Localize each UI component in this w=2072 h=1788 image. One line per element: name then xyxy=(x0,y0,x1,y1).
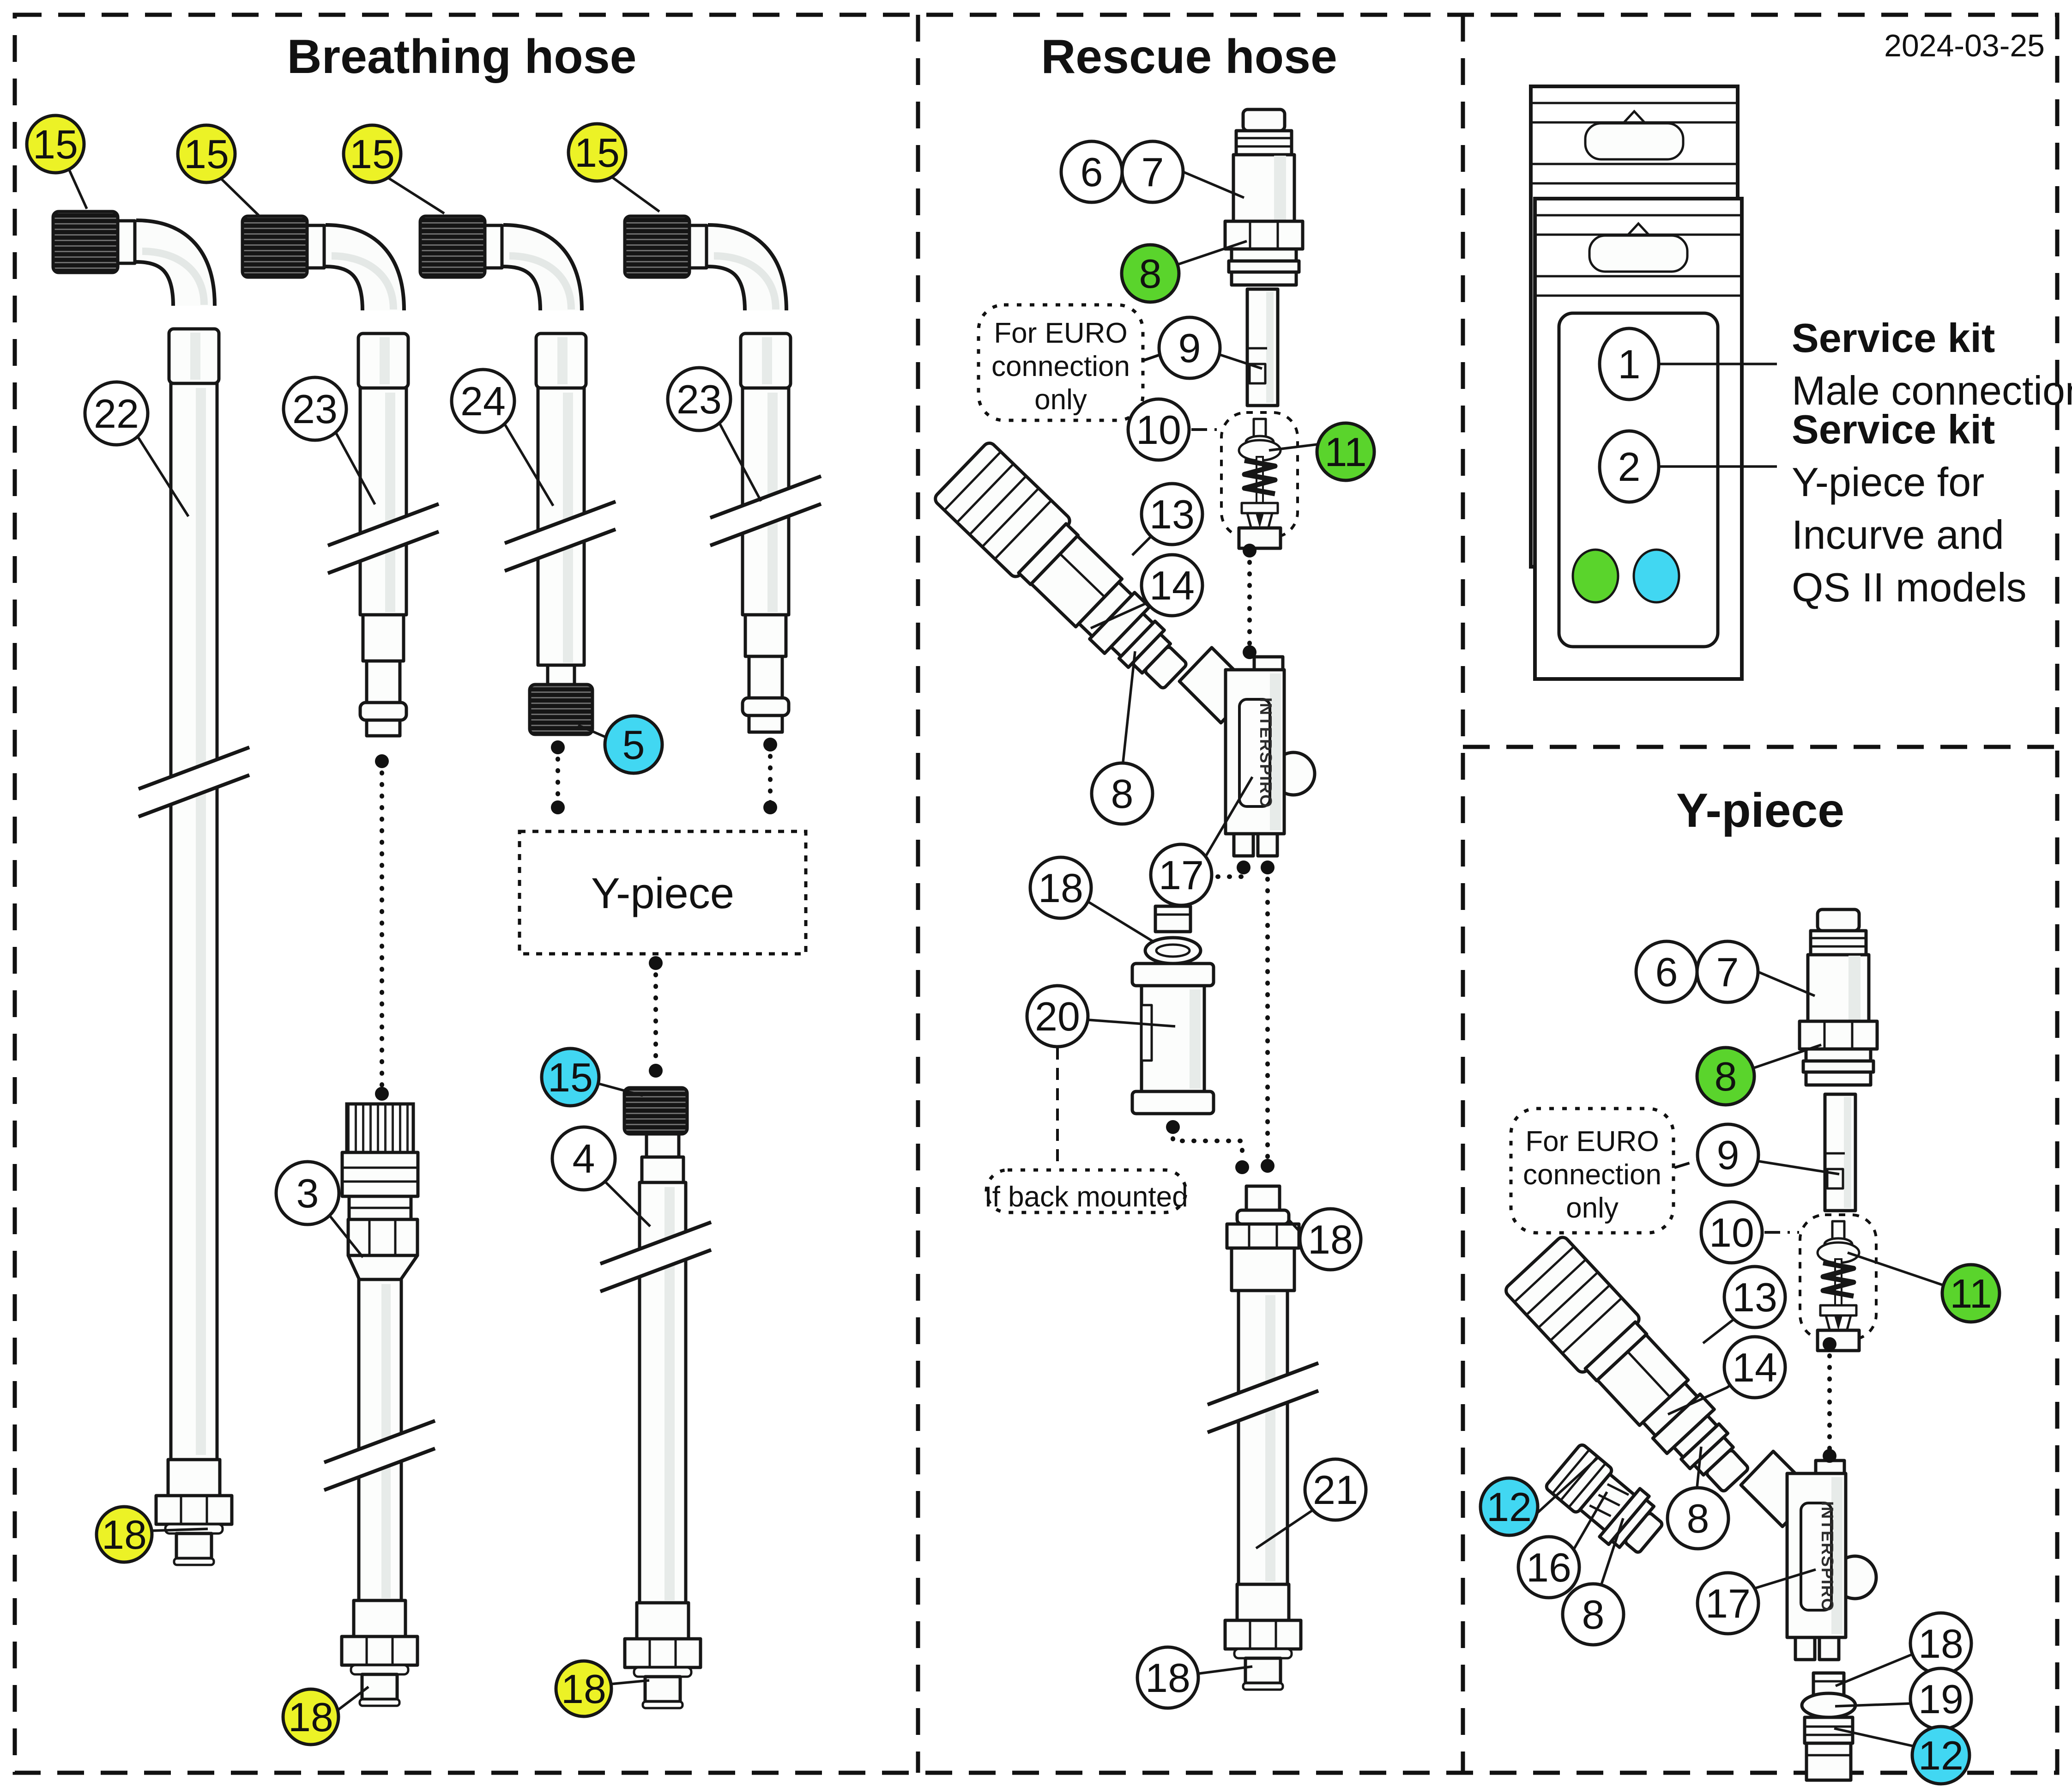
callout-number: 18 xyxy=(1918,1621,1963,1667)
breathing-hose-24 xyxy=(420,216,616,734)
kit2-cyan-oring xyxy=(1634,550,1679,602)
parts-diagram-page: INTERSPIRO 2024-03-25 Breathing hose xyxy=(0,0,2072,1788)
callout-number: 9 xyxy=(1717,1132,1740,1178)
callout-10: 10 xyxy=(1701,1202,1799,1263)
kit2-desc-line3: QS II models xyxy=(1792,564,2027,610)
callout-8: 8 xyxy=(1092,651,1153,824)
ypiece-placeholder-label: Y-piece xyxy=(591,869,734,917)
callout-11: 11 xyxy=(1269,423,1374,480)
callout-18: 18 xyxy=(1289,1209,1361,1270)
kit2-desc-line1: Y-piece for xyxy=(1792,459,1984,505)
callout-15: 15 xyxy=(178,125,259,215)
callout-number: 8 xyxy=(1582,1592,1605,1637)
breathing-hose-23b xyxy=(625,216,821,732)
breathing-hose-title: Breathing hose xyxy=(287,30,637,84)
callout-number: 5 xyxy=(622,722,645,768)
outlet-adapter-stack xyxy=(1802,1673,1855,1780)
callout-number: 15 xyxy=(33,121,78,167)
callout-15: 15 xyxy=(27,115,87,209)
svg-text:only: only xyxy=(1566,1192,1619,1224)
callout-number: 23 xyxy=(677,376,722,422)
breathing-hose-23a xyxy=(242,216,439,736)
ypiece-body-y xyxy=(1741,1451,1876,1660)
revision-date: 2024-03-25 xyxy=(1884,28,2045,63)
callout-number: 18 xyxy=(1038,865,1083,911)
callout-number: 18 xyxy=(288,1694,333,1740)
ypiece-title: Y-piece xyxy=(1676,784,1844,837)
callout-number: 6 xyxy=(1655,949,1678,995)
callout-number: 19 xyxy=(1918,1676,1963,1722)
callout-number: 18 xyxy=(561,1666,606,1712)
callout-number: 17 xyxy=(1705,1581,1751,1626)
male-plug-part xyxy=(1225,109,1303,285)
callout-13: 13 xyxy=(1132,484,1202,555)
callout-number: 15 xyxy=(350,131,395,177)
male-plug-part-y xyxy=(1800,909,1877,1085)
valve-cartridge xyxy=(1221,412,1298,548)
hose-assembly-4 xyxy=(600,1088,711,1708)
hose-assembly-3 xyxy=(324,1104,435,1706)
svg-text:connection: connection xyxy=(991,351,1130,382)
callout-number: 13 xyxy=(1732,1274,1777,1320)
svg-text:If back mounted: If back mounted xyxy=(984,1181,1188,1213)
callout-number: 8 xyxy=(1111,771,1134,817)
callout-number: 10 xyxy=(1709,1210,1754,1255)
callout-9: 9 xyxy=(1697,1124,1839,1185)
callout-number: 16 xyxy=(1526,1545,1571,1590)
rescue-hose-title: Rescue hose xyxy=(1041,30,1337,84)
breathing-hose-22 xyxy=(53,212,249,1565)
callout-number: 10 xyxy=(1136,407,1181,453)
callout-15: 15 xyxy=(344,125,444,213)
callout-7: 7 xyxy=(1122,141,1244,202)
callout-number: 4 xyxy=(573,1136,595,1182)
callout-11: 11 xyxy=(1848,1253,2000,1322)
breathing-hose-panel: Breathing hose xyxy=(53,30,821,1708)
euro-sleeve-part xyxy=(1247,289,1278,406)
callout-number: 18 xyxy=(1145,1655,1190,1701)
callout-number: 21 xyxy=(1313,1467,1358,1513)
ypiece-connectors xyxy=(1823,1337,1836,1463)
rescue-hose-21 xyxy=(1208,1186,1318,1690)
euro-note-ypiece: For EURO connection only xyxy=(1511,1109,1698,1233)
callout-number: 3 xyxy=(296,1170,319,1216)
kit2-desc-line2: Incurve and xyxy=(1792,512,2004,558)
callout-number: 7 xyxy=(1142,149,1164,195)
euro-sleeve-part-y xyxy=(1825,1094,1855,1211)
callout-number: 15 xyxy=(574,130,620,176)
svg-text:connection: connection xyxy=(1523,1159,1661,1191)
callout-number: 20 xyxy=(1035,994,1080,1039)
diagram-canvas: INTERSPIRO 2024-03-25 Breathing hose xyxy=(0,0,2072,1788)
callout-number: 24 xyxy=(460,378,506,424)
callout-number: 12 xyxy=(1918,1733,1963,1778)
callout-number: 8 xyxy=(1687,1496,1710,1541)
ypiece-panel: Y-piece For EURO connection only xyxy=(1504,784,1877,1780)
callout-number: 9 xyxy=(1178,325,1201,371)
svg-text:only: only xyxy=(1034,384,1087,416)
callout-number: 8 xyxy=(1715,1054,1737,1099)
ypiece-body xyxy=(1179,648,1315,856)
callout-number: 13 xyxy=(1149,491,1195,537)
callout-number: 23 xyxy=(292,386,338,432)
callout-6: 6 xyxy=(1061,141,1122,202)
callout-18: 18 xyxy=(283,1687,368,1745)
callout-number: 2 xyxy=(1618,444,1641,490)
callout-number: 15 xyxy=(184,131,229,177)
callout-number: 6 xyxy=(1081,149,1103,195)
callout-13: 13 xyxy=(1703,1267,1785,1343)
callout-4: 4 xyxy=(552,1127,650,1226)
callout-number: 18 xyxy=(1308,1217,1353,1262)
callout-number: 1 xyxy=(1618,341,1641,387)
kit1-title: Service kit xyxy=(1792,315,1995,361)
callout-number: 12 xyxy=(1486,1484,1532,1530)
euro-note-rescue: For EURO connection only xyxy=(979,305,1160,420)
callout-8: 8 xyxy=(1697,1045,1821,1105)
callout-7: 7 xyxy=(1697,941,1815,1002)
callout-number: 14 xyxy=(1149,563,1195,608)
callout-number: 17 xyxy=(1159,852,1204,898)
callout-10: 10 xyxy=(1128,399,1220,460)
callout-12: 12 xyxy=(1834,1727,1969,1784)
callout-6: 6 xyxy=(1636,941,1697,1002)
callout-number: 11 xyxy=(1950,1271,1992,1316)
callout-number: 14 xyxy=(1732,1345,1777,1390)
callout-18: 18 xyxy=(1030,857,1154,942)
kit2-green-oring xyxy=(1573,550,1618,602)
callout-number: 7 xyxy=(1716,949,1739,995)
callout-number: 11 xyxy=(1324,429,1366,475)
callout-number: 22 xyxy=(94,391,139,436)
callout-number: 15 xyxy=(548,1055,593,1100)
breathing-connectors xyxy=(375,738,777,1101)
callout-number: 18 xyxy=(102,1512,147,1558)
callout-15: 15 xyxy=(568,124,659,212)
callout-number: 8 xyxy=(1139,251,1162,297)
svg-text:For EURO: For EURO xyxy=(1525,1126,1659,1158)
svg-text:For EURO: For EURO xyxy=(994,317,1127,349)
kit2-title: Service kit xyxy=(1792,406,1995,452)
valve-cartridge-y xyxy=(1800,1215,1876,1351)
